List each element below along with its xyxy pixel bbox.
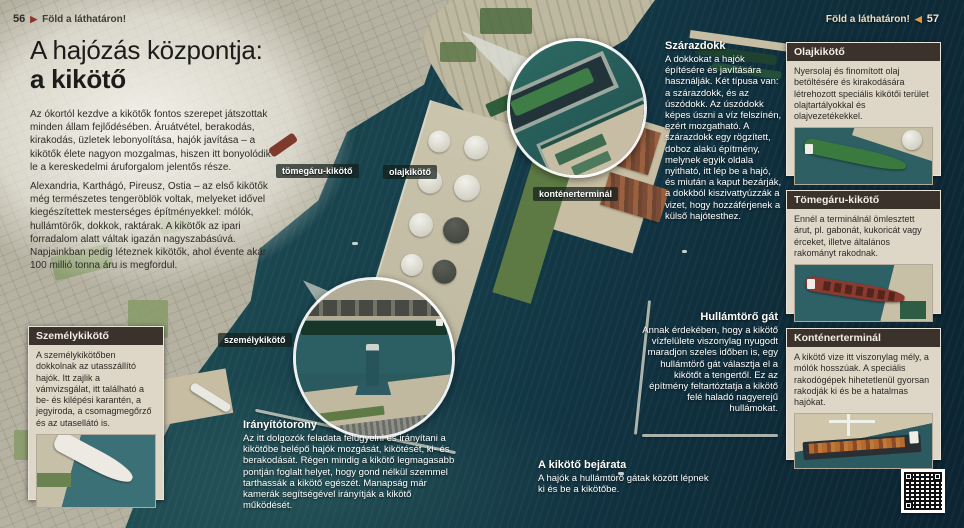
ship-bridge xyxy=(805,144,813,154)
forward-arrow-icon: ▶ xyxy=(30,15,37,24)
crane-mast xyxy=(847,414,850,436)
book-spread: 56 ▶ Föld a láthatáron! Föld a láthatáro… xyxy=(0,0,964,528)
inset-tanker-ship xyxy=(301,321,448,335)
breakwater-east-arm xyxy=(642,434,778,437)
note-breakwater-title: Hullámtörő gát xyxy=(638,311,778,323)
container-terminal-photo xyxy=(794,413,933,469)
qr-finder xyxy=(904,472,913,481)
label-passenger-port: személykikötő xyxy=(218,333,292,347)
section-title-right: Föld a láthatáron! xyxy=(826,14,910,25)
drydock-inset-photo xyxy=(507,38,647,178)
small-boat xyxy=(352,242,358,245)
infobox-oil-body: Nyersolaj és finomított olaj betöltésére… xyxy=(787,61,940,125)
infobox-passenger-port: Személykikötő A személykikötőben dokkoln… xyxy=(28,326,164,500)
intro-paragraph-2: Alexandria, Karthágó, Pireusz, Ostia – a… xyxy=(30,180,280,272)
infobox-passenger-title: Személykikötő xyxy=(29,327,163,345)
oil-tank xyxy=(451,171,483,203)
crane-arm xyxy=(829,420,875,423)
page-number-left: 56 xyxy=(13,13,25,25)
shipyard-green xyxy=(440,42,476,62)
infobox-bulk-title: Tömegáru-kikötő xyxy=(787,191,940,209)
small-boat xyxy=(682,250,687,253)
note-dry-dock: Szárazdokk A dokkokat a hajók építésére … xyxy=(665,40,783,222)
note-dry-dock-body: A dokkokat a hajók építésére és javításá… xyxy=(665,54,783,222)
label-container-terminal: konténerterminál xyxy=(533,187,618,201)
page-header-left: 56 ▶ Föld a láthatáron! xyxy=(13,13,126,25)
label-bulk-port: tömegáru-kikötő xyxy=(276,164,359,178)
page-number-right: 57 xyxy=(927,13,939,25)
oil-tank xyxy=(461,133,491,163)
container-stacks-on-ship xyxy=(809,437,905,454)
control-tower-inset-photo xyxy=(293,277,455,439)
ship-bridge xyxy=(909,431,919,444)
back-arrow-icon: ◀ xyxy=(915,15,922,24)
qr-code xyxy=(901,469,945,513)
qr-finder xyxy=(904,501,913,510)
infobox-passenger-body: A személykikötőben dokkolnak az utasszál… xyxy=(29,345,163,432)
photo-green-patch xyxy=(900,301,926,319)
inset-tank-row xyxy=(305,300,442,316)
page-title: A hajózás központja: a kikötő xyxy=(30,36,263,93)
passenger-port-photo xyxy=(36,434,156,508)
note-harbor-entrance: A kikötő bejárata A hajók a hullámtörő g… xyxy=(538,459,713,495)
note-harbor-entrance-body: A hajók a hullámtörő gátak között lépnek… xyxy=(538,473,713,495)
section-title-left: Föld a láthatáron! xyxy=(42,14,126,25)
note-breakwater: Hullámtörő gát Annak érdekében, hogy a k… xyxy=(638,311,778,415)
infobox-container-body: A kikötő vize itt viszonylag mély, a mól… xyxy=(787,347,940,411)
oil-tank xyxy=(440,214,472,246)
note-control-tower-body: Az itt dolgozók feladata felügyelni és i… xyxy=(243,433,456,511)
infobox-bulk-body: Ennél a terminálnál ömlesztett árut, pl.… xyxy=(787,209,940,262)
note-dry-dock-title: Szárazdokk xyxy=(665,40,783,52)
infobox-container-terminal: Konténerterminál A kikötő vize itt viszo… xyxy=(786,328,941,460)
ship-bridge xyxy=(807,279,815,289)
infobox-container-title: Konténerterminál xyxy=(787,329,940,347)
oil-tank xyxy=(406,210,436,240)
oil-tank xyxy=(426,128,453,155)
oil-tank xyxy=(398,251,425,278)
infobox-oil-title: Olajkikötő xyxy=(787,43,940,61)
label-oil-port: olajkikötő xyxy=(383,165,437,179)
bulk-port-photo xyxy=(794,264,933,322)
shipyard-green xyxy=(480,8,532,34)
page-title-line2: a kikötő xyxy=(30,65,263,94)
photo-lawn xyxy=(37,473,71,487)
note-control-tower-title: Irányítótorony xyxy=(243,419,456,431)
page-header-right: Föld a láthatáron! ◀ 57 xyxy=(826,13,939,25)
infobox-bulk-port: Tömegáru-kikötő Ennél a terminálnál ömle… xyxy=(786,190,941,314)
note-harbor-entrance-title: A kikötő bejárata xyxy=(538,459,713,471)
oil-port-photo xyxy=(794,127,933,185)
note-breakwater-body: Annak érdekében, hogy a kikötő vízfelüle… xyxy=(638,325,778,415)
control-tower xyxy=(366,344,379,386)
note-control-tower: Irányítótorony Az itt dolgozók feladata … xyxy=(243,419,456,511)
infobox-oil-port: Olajkikötő Nyersolaj és finomított olaj … xyxy=(786,42,941,176)
qr-finder xyxy=(933,472,942,481)
intro-text: Az ókortól kezdve a kikötők fontos szere… xyxy=(30,108,280,278)
intro-paragraph-1: Az ókortól kezdve a kikötők fontos szere… xyxy=(30,108,280,174)
page-title-line1: A hajózás központja: xyxy=(30,36,263,65)
